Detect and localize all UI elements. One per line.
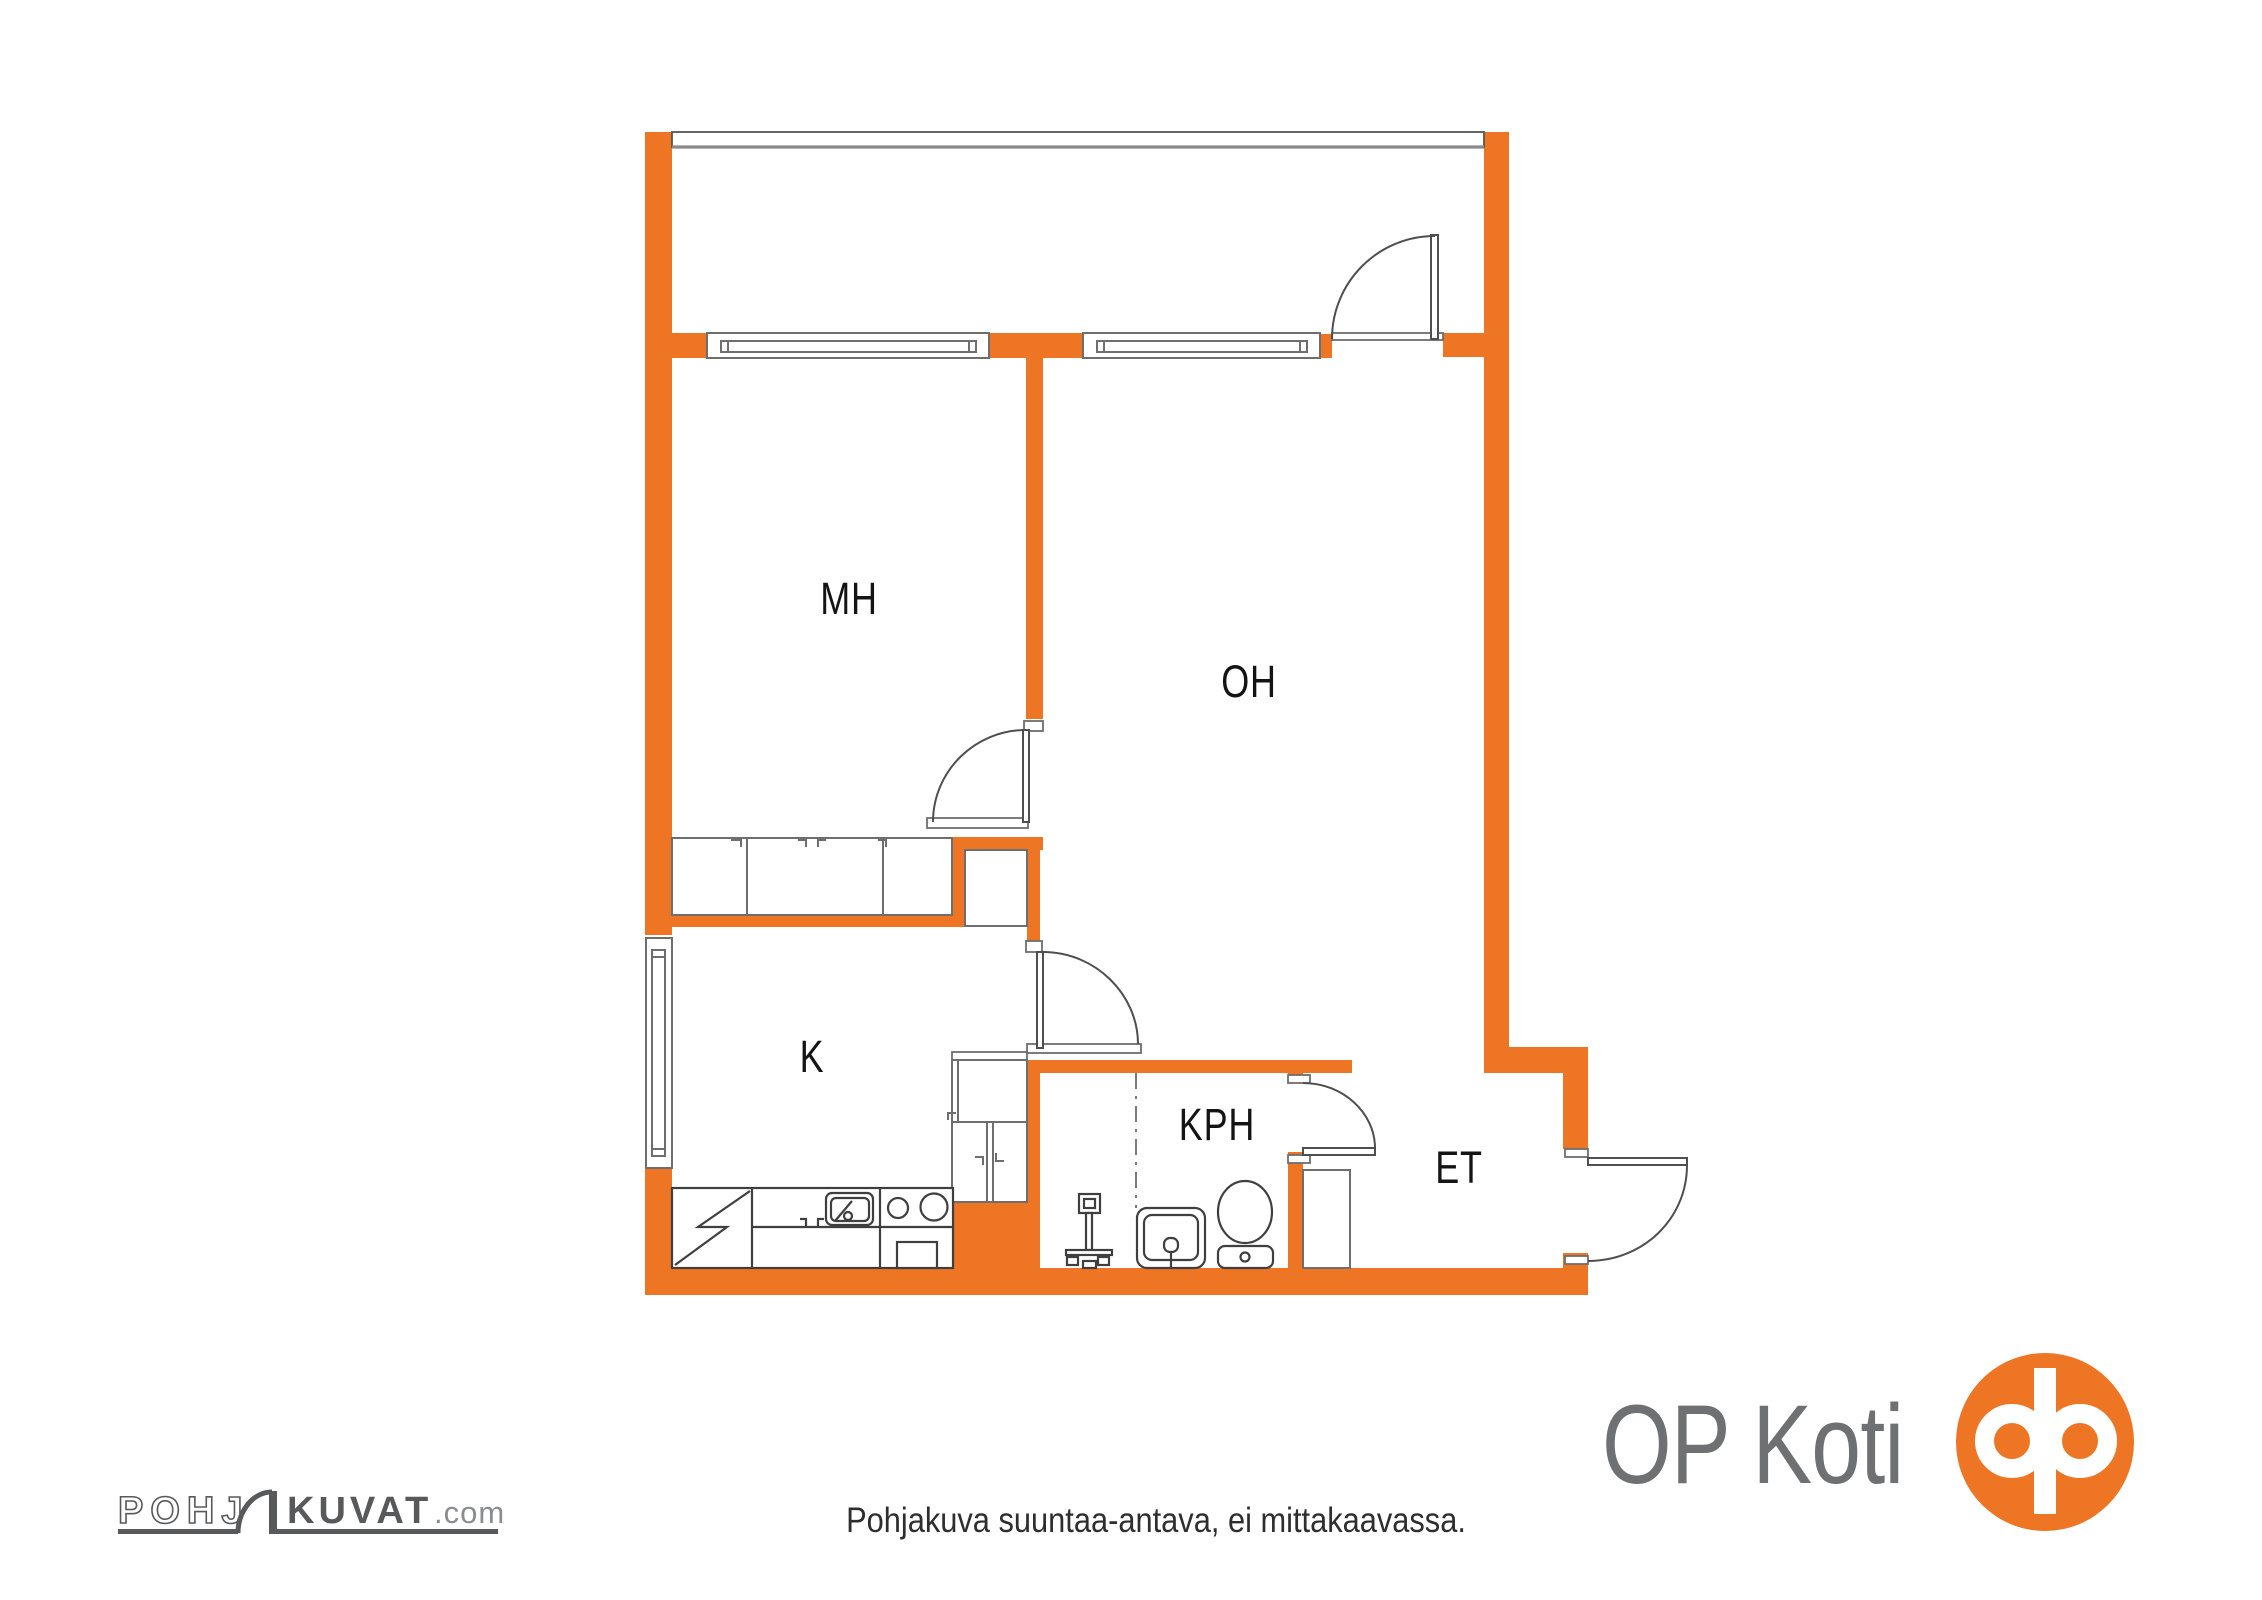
- hall-door: [1026, 941, 1141, 1053]
- wardrobes-mh: [672, 838, 952, 915]
- op-koti-brand-text: OP Koti: [1602, 1380, 1904, 1509]
- sink-drain: [844, 1212, 852, 1220]
- hall-door-jamb: [1026, 941, 1042, 952]
- watermark-door-stem: [269, 1491, 277, 1533]
- shaft-left-leg: [952, 850, 965, 927]
- room-label-kph: KPH: [1179, 1099, 1255, 1151]
- window-kitchen: [646, 938, 672, 1168]
- room-label-oh: OH: [1221, 656, 1277, 708]
- kph-door-swing: [1303, 1083, 1375, 1148]
- wall-kph-top: [1027, 1060, 1352, 1073]
- watermark-underline-right: [269, 1529, 498, 1534]
- mullion-balcony-door: [1320, 334, 1332, 358]
- pier-window-mid: [989, 333, 1083, 358]
- balcony-door: [1332, 235, 1443, 340]
- shaft-cavity: [965, 850, 1027, 926]
- walls: [645, 132, 1588, 1295]
- watermark-outline-text: POHJ: [118, 1490, 249, 1532]
- toilet-bowl: [1218, 1181, 1272, 1243]
- toilet-button: [1241, 1253, 1250, 1262]
- mh-door-threshold: [927, 818, 1028, 828]
- mh-door: [927, 721, 1043, 828]
- window-oh: [1083, 333, 1320, 358]
- room-label-mh: MH: [820, 573, 878, 625]
- oven: [897, 1242, 937, 1268]
- balcony-door-threshold: [1332, 333, 1443, 340]
- kph-door-leaf: [1303, 1148, 1375, 1155]
- toilet: [1218, 1181, 1273, 1268]
- floor-plan-drawing: POHJ KUVAT .com: [0, 0, 2262, 1600]
- wall-right-jog: [1509, 1047, 1588, 1073]
- disclaimer-text: Pohjakuva suuntaa-antava, ei mittakaavas…: [846, 1501, 1466, 1541]
- windows: [646, 333, 1320, 1168]
- wall-entry-upper: [1563, 1073, 1588, 1149]
- kph-door-jamb-bottom: [1288, 1155, 1310, 1163]
- room-label-et: ET: [1435, 1142, 1483, 1194]
- entrance-door-leaf: [1588, 1158, 1687, 1165]
- watermark-tld-text: .com: [434, 1495, 505, 1530]
- op-logo-icon: [1956, 1353, 2134, 1531]
- mh-door-swing: [933, 730, 1026, 822]
- entrance-door: [1565, 1149, 1687, 1264]
- kph-door: [1288, 1075, 1375, 1163]
- kitchen-closet-column: [948, 1052, 1027, 1202]
- watermark-underline-left: [118, 1529, 238, 1534]
- entrance-door-jamb-top: [1565, 1149, 1588, 1157]
- wall-left-upper: [645, 132, 672, 935]
- pohjakuvat-logo: POHJ KUVAT .com: [118, 1490, 505, 1534]
- entry-closet: [1303, 1170, 1350, 1268]
- entrance-door-jamb-bottom: [1565, 1256, 1588, 1264]
- balcony-edge: [672, 132, 1484, 147]
- wall-kitchen-hall: [1027, 850, 1040, 943]
- hall-door-threshold: [1027, 1044, 1141, 1053]
- washbasin: [1137, 1208, 1205, 1268]
- wall-mh-bottom: [671, 915, 952, 927]
- shower-mixer: [1066, 1194, 1112, 1268]
- balcony-door-swing: [1332, 236, 1435, 339]
- wall-closet-block: [952, 1200, 1040, 1268]
- stove-burner-small: [888, 1198, 908, 1218]
- watermark-solid-text: KUVAT: [287, 1490, 432, 1532]
- wall-bottom: [645, 1268, 1588, 1295]
- hall-door-swing: [1043, 952, 1138, 1044]
- stove-burner-large: [921, 1194, 948, 1221]
- hall-door-leaf: [1037, 952, 1043, 1048]
- floor-plan-page: POHJ KUVAT .com MH OH K KPH ET Pohjakuva…: [0, 0, 2262, 1600]
- basin-tap: [1164, 1238, 1178, 1252]
- wall-right: [1484, 132, 1509, 1073]
- mh-door-leaf: [1023, 730, 1029, 822]
- pier-window-left: [671, 333, 707, 358]
- shaft-top-bar: [952, 837, 1043, 850]
- entrance-door-swing: [1588, 1165, 1687, 1261]
- kph-door-jamb-top: [1288, 1075, 1310, 1083]
- pier-window-right: [1443, 333, 1484, 357]
- balcony-slab-band: [672, 132, 1484, 147]
- wall-mh-oh-divider: [1026, 358, 1043, 719]
- room-label-k: K: [800, 1031, 825, 1083]
- wall-kph-right: [1288, 1152, 1303, 1268]
- balcony-door-leaf: [1431, 235, 1438, 339]
- kitchen-counter: [672, 1188, 953, 1268]
- window-mh: [707, 333, 989, 358]
